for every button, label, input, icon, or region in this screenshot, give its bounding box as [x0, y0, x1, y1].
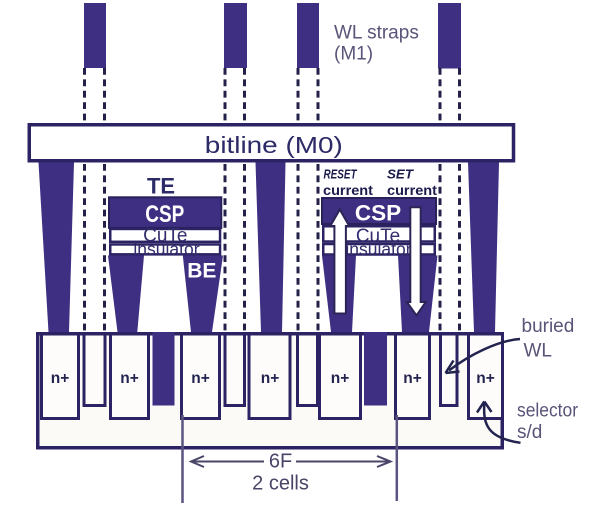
svg-text:s/d: s/d — [517, 422, 542, 443]
svg-text:current: current — [323, 182, 373, 198]
svg-text:WL: WL — [524, 341, 553, 362]
svg-text:BE: BE — [187, 260, 216, 283]
svg-text:buried: buried — [522, 316, 575, 337]
svg-text:SET: SET — [387, 167, 414, 182]
svg-text:WL straps: WL straps — [334, 23, 419, 44]
svg-text:TE: TE — [147, 174, 175, 199]
svg-text:n+: n+ — [476, 370, 495, 387]
svg-text:current: current — [387, 182, 437, 198]
svg-text:selector: selector — [517, 401, 579, 422]
svg-text:CSP: CSP — [355, 201, 401, 226]
svg-text:n+: n+ — [51, 370, 70, 387]
svg-text:n+: n+ — [331, 370, 350, 387]
svg-text:RESET: RESET — [324, 167, 358, 182]
svg-text:bitline (M0): bitline (M0) — [205, 132, 343, 158]
svg-text:6F: 6F — [269, 450, 292, 472]
svg-text:n+: n+ — [261, 370, 280, 387]
svg-text:n+: n+ — [120, 370, 139, 387]
svg-text:2 cells: 2 cells — [252, 473, 309, 495]
svg-text:CSP: CSP — [145, 201, 184, 228]
svg-text:(M1): (M1) — [334, 44, 373, 65]
svg-text:n+: n+ — [191, 370, 210, 387]
svg-text:n+: n+ — [403, 370, 422, 387]
